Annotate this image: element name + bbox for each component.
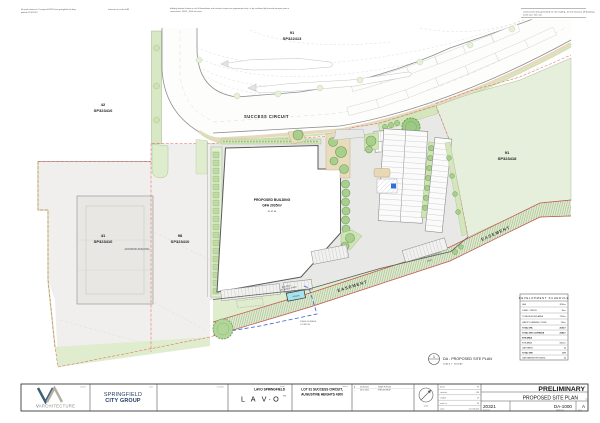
svg-text:LOCATION: LOCATION [300, 323, 311, 326]
svg-text:SP323418: SP323418 [498, 156, 517, 161]
svg-text:SP323410: SP323410 [94, 108, 113, 113]
svg-text:TOTAL BUILDING AREA: TOTAL BUILDING AREA [522, 315, 544, 318]
svg-text:DA-1000: DA-1000 [554, 404, 573, 409]
svg-text:at full size. See site.: at full size. See site. [523, 13, 543, 16]
svg-text:SUCCESS CIRCUIT: SUCCESS CIRCUIT [244, 114, 289, 119]
svg-text:DA - PROPOSED SITE PLAN: DA - PROPOSED SITE PLAN [443, 357, 492, 361]
svg-text:CANOPY / AWNING COVER: CANOPY / AWNING COVER [522, 321, 547, 324]
svg-text:PROPOSED BUILDING: PROPOSED BUILDING [254, 198, 291, 202]
svg-text:98: 98 [178, 233, 183, 238]
svg-text:LOBBY / OFFICE: LOBBY / OFFICE [522, 310, 538, 312]
svg-text:plotted 02.08.2021: plotted 02.08.2021 [21, 11, 38, 14]
svg-text:SITE AREA: SITE AREA [522, 342, 533, 345]
svg-text:20321: 20321 [483, 404, 496, 409]
svg-text:LAVO SPRINGFIELD: LAVO SPRINGFIELD [254, 388, 286, 392]
svg-text:reference to scale of A3: reference to scale of A3 [108, 8, 130, 11]
svg-text:TOTAL SITE COVERAGE: TOTAL SITE COVERAGE [522, 332, 545, 335]
svg-text:CITY GROUP: CITY GROUP [105, 398, 141, 404]
svg-text:GFA 2035m²: GFA 2035m² [262, 204, 282, 208]
svg-text:27%: 27% [562, 353, 566, 355]
svg-text:PRELIMINARY: PRELIMINARY [538, 386, 585, 393]
svg-text:ISSUE FOR DA: ISSUE FOR DA [378, 386, 391, 389]
svg-text:SP322413: SP322413 [283, 36, 302, 41]
svg-text:2035m²: 2035m² [559, 327, 566, 330]
svg-text:SITE AREA: SITE AREA [522, 337, 533, 340]
svg-text:AUGUSTINE HEIGHTS 4300: AUGUSTINE HEIGHTS 4300 [301, 393, 343, 397]
svg-text:42: 42 [101, 102, 106, 107]
svg-text:STAGE SIGNAGE: STAGE SIGNAGE [300, 320, 317, 323]
svg-text:TOTAL GFA: TOTAL GFA [522, 327, 533, 330]
svg-text:CAR PARKS: CAR PARKS [522, 347, 534, 350]
svg-text:2035m²: 2035m² [560, 303, 567, 306]
svg-text:DEVELOPMENT SCHEDULE: DEVELOPMENT SCHEDULE [519, 296, 569, 300]
svg-text:drawing no: drawing no [556, 409, 564, 411]
svg-text:checked: checked [440, 392, 447, 394]
svg-text:not indicated: not indicated [469, 407, 479, 410]
svg-text:verified: verified [440, 398, 446, 400]
svg-text:scale: scale [440, 408, 444, 410]
svg-text:41: 41 [101, 233, 106, 238]
svg-text:91: 91 [505, 150, 510, 155]
svg-text:28.07.2021: 28.07.2021 [360, 390, 369, 392]
svg-text:8200m²: 8200m² [560, 342, 567, 345]
svg-text:PROPOSED SITE PLAN: PROPOSED SITE PLAN [523, 395, 579, 401]
svg-text:north: north [424, 405, 428, 408]
svg-text:SP323410: SP323410 [94, 239, 113, 244]
svg-text:construction data generated on: construction data generated on site read… [523, 10, 595, 13]
svg-text:file path reference C:\ projec: file path reference C:\ projects\20321 l… [21, 8, 76, 11]
svg-text:building footprint shown in re: building footprint shown in red. all bou… [170, 7, 290, 10]
svg-text:64: 64 [564, 358, 566, 360]
svg-text:drawn: drawn [440, 387, 445, 389]
svg-text:SCALE 1 : 500@A3: SCALE 1 : 500@A3 [443, 363, 463, 366]
svg-text:address: address [342, 386, 348, 388]
svg-text:CAR PARKING PROVIDED: CAR PARKING PROVIDED [522, 357, 546, 360]
svg-text:ADJOINING BUILDING: ADJOINING BUILDING [125, 248, 150, 251]
svg-text:VARCHITECTURE: VARCHITECTURE [36, 404, 75, 409]
svg-text:TM: TM [283, 396, 286, 398]
svg-text:2115m²: 2115m² [560, 315, 567, 318]
svg-text:80m²: 80m² [562, 309, 567, 312]
svg-text:LOT 91 SUCCESS CIRCUIT,: LOT 91 SUCCESS CIRCUIT, [301, 388, 343, 392]
svg-text:2245m²: 2245m² [559, 332, 566, 335]
svg-text:02.08.2021: 02.08.2021 [360, 387, 369, 389]
svg-text:issue: issue [578, 409, 582, 411]
svg-text:FL 37.00: FL 37.00 [268, 211, 277, 213]
svg-text:construction. 20321_1000 site: construction. 20321_1000 site issue [170, 10, 203, 13]
svg-text:PRELIM ISSUE: PRELIM ISSUE [378, 390, 391, 392]
svg-text:130m²: 130m² [561, 321, 567, 324]
svg-text:TOTAL SITE: TOTAL SITE [522, 352, 534, 355]
svg-text:1: 1 [433, 355, 435, 359]
svg-text:scale: scale [585, 398, 589, 400]
svg-text:L A V·O: L A V·O [241, 395, 281, 404]
svg-text:91: 91 [290, 30, 295, 35]
svg-text:SP323410: SP323410 [171, 239, 190, 244]
svg-text:north ref: north ref [440, 402, 447, 405]
svg-text:64: 64 [564, 348, 566, 350]
